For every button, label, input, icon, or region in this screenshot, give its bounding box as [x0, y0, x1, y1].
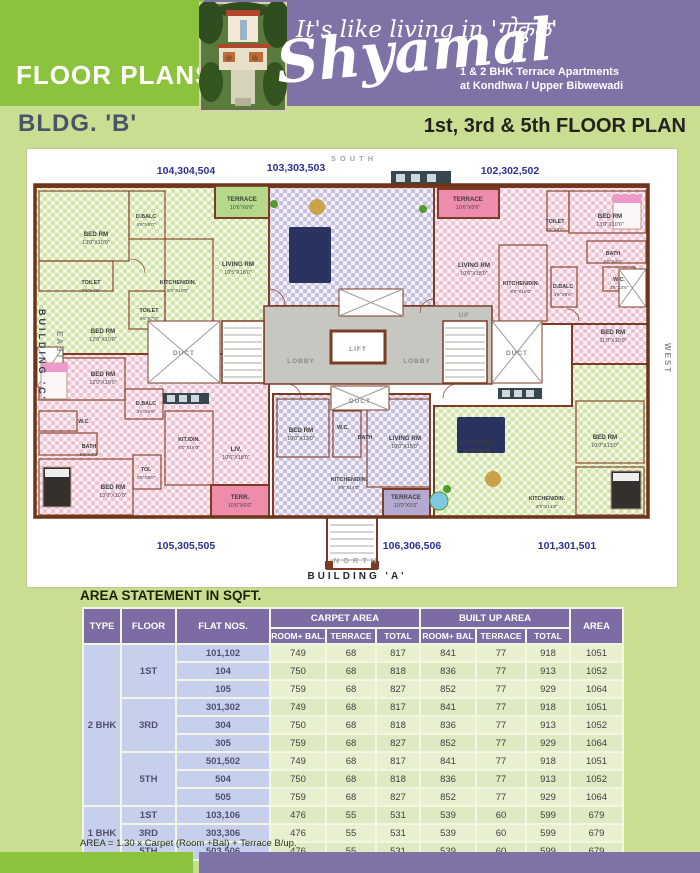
table-cell: 5TH: [121, 752, 176, 806]
room-dim-label: 13'0"X10'0": [596, 222, 624, 228]
table-cell: 750: [270, 716, 326, 734]
table-cell: 599: [526, 806, 570, 824]
col-area: AREA: [570, 608, 623, 644]
room-dim-label: 10'6"X6'6": [456, 205, 481, 211]
table-row: 1 BHK1ST103,1064765553153960599679: [83, 806, 623, 824]
table-cell: 749: [270, 644, 326, 662]
table-cell: 827: [376, 680, 420, 698]
room-name-label: BED RM: [91, 371, 115, 378]
room-name-label: BED RM: [289, 427, 313, 434]
plant-icon: [443, 485, 451, 493]
table-cell: 913: [526, 662, 570, 680]
room-dim-label: 10'6"X6'6": [230, 205, 255, 211]
table-cell: 1ST: [121, 806, 176, 824]
table-unit-103: [309, 199, 325, 215]
table-cell: 55: [326, 824, 376, 842]
col-builtup-terrace: TERRACE: [476, 628, 526, 644]
table-cell: 759: [270, 680, 326, 698]
core-label: DUCT: [349, 398, 371, 405]
building-b-title: BLDG. 'B': [18, 110, 137, 138]
core-label: LOBBY: [287, 358, 315, 365]
room-name-label: BED RM: [598, 213, 622, 220]
table-cell: 929: [526, 734, 570, 752]
table-cell: 68: [326, 662, 376, 680]
table-cell: 1064: [570, 680, 623, 698]
room-name-label: BED RM: [593, 434, 617, 441]
table-cell: 77: [476, 698, 526, 716]
core-label: DUCT: [173, 350, 195, 357]
table-cell: 77: [476, 770, 526, 788]
table-cell: 55: [326, 806, 376, 824]
brochure-page: { "header": { "floor_plans": "FLOOR PLAN…: [0, 0, 700, 873]
table-cell: 77: [476, 752, 526, 770]
building-c-label: BUILDING 'C': [37, 309, 47, 402]
floor-plan-title: 1st, 3rd & 5th FLOOR PLAN: [424, 115, 686, 138]
compass-east: EAST: [55, 331, 64, 360]
table-cell: 750: [270, 662, 326, 680]
table-cell: 77: [476, 734, 526, 752]
table-cell: 68: [326, 770, 376, 788]
table-cell: 105: [176, 680, 270, 698]
rug-unit-101: [457, 417, 505, 453]
room-name-label: BATH: [358, 435, 373, 441]
table-cell: 77: [476, 716, 526, 734]
table-cell: 827: [376, 788, 420, 806]
compass-west: WEST: [663, 343, 672, 374]
room-dim-label: 4'6"X6'6": [553, 292, 572, 298]
core-label: UP: [458, 312, 469, 319]
room-dim-label: 8'0"X18'0": [178, 445, 200, 451]
footer-green-bar: [0, 852, 193, 873]
room-name-label: KITCHEN/DIN.: [160, 280, 197, 286]
table-cell: 68: [326, 644, 376, 662]
room-dim-label: 10'5"X18'0": [224, 270, 252, 276]
table-cell: 1064: [570, 788, 623, 806]
col-carpet-total: TOTAL: [376, 628, 420, 644]
room-dim-label: 6'6"X4'0": [603, 259, 622, 265]
table-cell: 531: [376, 806, 420, 824]
table-cell: 836: [420, 770, 476, 788]
table-cell: 1064: [570, 734, 623, 752]
room-name-label: KIT./DIN.: [178, 437, 200, 443]
table-cell: 101,102: [176, 644, 270, 662]
table-cell: 305: [176, 734, 270, 752]
fountain: [430, 492, 448, 510]
room-dim-label: 10'6"X18'0": [460, 271, 488, 277]
table-cell: 749: [270, 752, 326, 770]
col-builtup-roombal: ROOM+ BAL: [420, 628, 476, 644]
table-cell: 913: [526, 716, 570, 734]
col-floor: FLOOR: [121, 608, 176, 644]
room-name-label: TOILET: [545, 219, 565, 225]
area-table: TYPE FLOOR FLAT NOS. CARPET AREA BUILT U…: [82, 607, 624, 861]
table-cell: 1051: [570, 644, 623, 662]
room-dim-label: 4'6"X8'0": [545, 227, 564, 233]
area-table-header: TYPE FLOOR FLAT NOS. CARPET AREA BUILT U…: [83, 608, 623, 644]
compass-north: NORTH: [334, 556, 381, 565]
room-name-label: LIVING RM: [458, 262, 490, 269]
room-name-label: D.BALC: [553, 284, 573, 290]
room-dim-label: 8'6"X14'0": [536, 504, 558, 510]
table-cell: 304: [176, 716, 270, 734]
room-name-label: TERRACE: [227, 196, 257, 203]
col-type: TYPE: [83, 608, 121, 644]
room-name-label: W.C.: [78, 419, 90, 425]
table-cell: 679: [570, 806, 623, 824]
room-name-label: BATH: [606, 251, 621, 257]
room-name-label: KITCHEN/DIN.: [529, 496, 566, 502]
table-unit-101: [485, 471, 501, 487]
floor-plan-drawing: SOUTH NORTH BUILDING 'A' BUILDING 'C' EA…: [27, 149, 677, 587]
table-cell: 1051: [570, 752, 623, 770]
table-row: 3RD301,30274968817841779181051: [83, 698, 623, 716]
room-name-label: D.BALC: [136, 214, 156, 220]
table-cell: 817: [376, 698, 420, 716]
col-builtup-total: TOTAL: [526, 628, 570, 644]
col-flat-nos: FLAT NOS.: [176, 608, 270, 644]
room-dim-label: 8'0"X18'0": [167, 288, 189, 294]
room-name-label: TERRACE: [391, 494, 421, 501]
table-cell: 68: [326, 680, 376, 698]
room-name-label: TERRACE: [453, 196, 483, 203]
table-cell: 817: [376, 752, 420, 770]
plant-icon: [270, 200, 278, 208]
table-cell: 818: [376, 770, 420, 788]
table-cell: 841: [420, 644, 476, 662]
table-cell: 836: [420, 716, 476, 734]
table-cell: 827: [376, 734, 420, 752]
table-cell: 817: [376, 644, 420, 662]
room-name-label: KITCHEN/DIN.: [331, 477, 368, 483]
table-cell: 852: [420, 734, 476, 752]
room-name-label: TOI.: [141, 467, 152, 473]
floor-plans-banner: FLOOR PLANS: [16, 60, 213, 91]
room-name-label: W.C.: [337, 425, 349, 431]
room-dim-label: 10'6"X6'6": [228, 503, 253, 509]
room-dim-label: 4'6"X8'0": [136, 222, 155, 228]
table-cell: 103,106: [176, 806, 270, 824]
room-name-label: BED RM: [84, 231, 108, 238]
room-dim-label: 10'0"X13'0": [591, 443, 619, 449]
room-name-label: LIVING RM: [389, 435, 421, 442]
compass-south: SOUTH: [331, 154, 377, 163]
table-cell: 77: [476, 644, 526, 662]
room-dim-label: 11'0"X10'0": [599, 338, 626, 344]
col-carpet-roombal: ROOM+ BAL.: [270, 628, 326, 644]
room-name-label: BED RM: [101, 484, 125, 491]
table-cell: 68: [326, 734, 376, 752]
table-cell: 679: [570, 824, 623, 842]
table-cell: 918: [526, 644, 570, 662]
table-cell: 918: [526, 698, 570, 716]
room-dim-label: 12'0"X10'0": [89, 337, 117, 343]
table-cell: 68: [326, 788, 376, 806]
building-a-label: BUILDING 'A': [307, 571, 406, 582]
table-cell: 836: [420, 662, 476, 680]
table-cell: 68: [326, 698, 376, 716]
table-cell: 104: [176, 662, 270, 680]
stair-left: [222, 321, 264, 383]
table-cell: 539: [420, 824, 476, 842]
room-dim-label: 10'0"X13'0": [287, 436, 315, 442]
room-dim-label: 8'6"X14'0": [338, 485, 360, 491]
table-cell: 77: [476, 680, 526, 698]
flat-number-label: 102,302,502: [481, 165, 540, 177]
room-dim-label: 13'0"X10'0": [99, 493, 127, 499]
room-dim-label: 10'0"X15'0": [463, 449, 491, 455]
table-cell: 818: [376, 662, 420, 680]
room-name-label: TERR.: [231, 494, 250, 501]
table-cell: 841: [420, 698, 476, 716]
table-cell: 68: [326, 716, 376, 734]
room-name-label: BED RM: [91, 328, 115, 335]
room-name-label: D.BALC: [136, 401, 156, 407]
table-cell: 852: [420, 680, 476, 698]
table-cell: 929: [526, 680, 570, 698]
col-carpet-terrace: TERRACE: [326, 628, 376, 644]
room-dim-label: 7'6"X4'6": [81, 288, 100, 294]
area-table-body: 2 BHK1ST101,1027496881784177918105110475…: [83, 644, 623, 860]
room-dim-label: 4'6"X6'6": [136, 409, 155, 415]
room-name-label: LIV.: [231, 446, 242, 453]
table-cell: 929: [526, 788, 570, 806]
table-cell: 818: [376, 716, 420, 734]
table-cell: 68: [326, 752, 376, 770]
table-cell: 1052: [570, 716, 623, 734]
room-name-label: TOILET: [139, 308, 159, 314]
flat-number-label: 103,303,503: [267, 162, 326, 174]
room-name-label: LIVING RM: [461, 440, 493, 447]
table-cell: 918: [526, 752, 570, 770]
room-name-label: W.C.: [613, 277, 625, 283]
duct-top: [339, 289, 403, 316]
stair-right: [443, 321, 487, 383]
room-dim-label: 13'0"X10'0": [82, 240, 110, 246]
room-dim-label: 3'6"X4'6": [609, 285, 628, 291]
core-label: LIFT: [349, 346, 367, 353]
room-name-label: LIVING RM: [222, 261, 254, 268]
table-cell: 1052: [570, 662, 623, 680]
rug-unit-103: [289, 227, 331, 283]
table-cell: 539: [420, 806, 476, 824]
table-cell: 505: [176, 788, 270, 806]
room-name-label: KITCHEN/DIN.: [503, 281, 540, 287]
table-cell: 759: [270, 788, 326, 806]
table-cell: 501,502: [176, 752, 270, 770]
table-cell: 1051: [570, 698, 623, 716]
room-name-label: TOILET: [81, 280, 101, 286]
table-cell: 476: [270, 806, 326, 824]
table-cell: 504: [176, 770, 270, 788]
table-cell: 531: [376, 824, 420, 842]
area-formula-note: AREA = 1.30 x Carpet (Room +Bal) + Terra…: [80, 838, 297, 849]
room-dim-label: 10'0"X15'0": [391, 444, 419, 450]
table-row: 2 BHK1ST101,10274968817841779181051: [83, 644, 623, 662]
table-cell: 750: [270, 770, 326, 788]
room-name-label: BATH: [82, 444, 97, 450]
room-dim-label: 8'6"X4'0": [79, 452, 98, 458]
subtitle-line2: at Kondhwa / Upper Bibwewadi: [460, 80, 623, 92]
table-cell: 599: [526, 824, 570, 842]
flat-number-label: 106,306,506: [383, 540, 442, 552]
table-row: 5TH501,50274968817841779181051: [83, 752, 623, 770]
table-cell: 841: [420, 752, 476, 770]
col-carpet-area: CARPET AREA: [270, 608, 420, 628]
table-cell: 1052: [570, 770, 623, 788]
flat-number-label: 101,301,501: [538, 540, 597, 552]
table-cell: 77: [476, 788, 526, 806]
plant-icon: [419, 205, 427, 213]
table-cell: 60: [476, 824, 526, 842]
room-dim-label: 10'6"X18'0": [222, 455, 250, 461]
col-builtup-area: BUILT UP AREA: [420, 608, 570, 628]
table-cell: 759: [270, 734, 326, 752]
room-dim-label: 4'6"X7'0": [139, 316, 158, 322]
table-cell: 77: [476, 662, 526, 680]
temple-painting: [199, 2, 287, 112]
table-cell: 1ST: [121, 644, 176, 698]
table-cell: 60: [476, 806, 526, 824]
area-statement-title: AREA STATEMENT IN SQFT.: [80, 588, 261, 603]
room-dim-label: 12'0"X10'0": [89, 380, 117, 386]
floor-plan-panel: SOUTH NORTH BUILDING 'A' BUILDING 'C' EA…: [26, 148, 678, 588]
flat-number-label: 105,305,505: [157, 540, 216, 552]
table-cell: 913: [526, 770, 570, 788]
core-label: LOBBY: [403, 358, 431, 365]
room-name-label: BED RM: [601, 329, 625, 336]
table-cell: 301,302: [176, 698, 270, 716]
table-cell: 749: [270, 698, 326, 716]
room-dim-label: 8'0"X18'0": [510, 289, 532, 295]
flat-number-label: 104,304,504: [157, 165, 216, 177]
table-cell: 3RD: [121, 698, 176, 752]
room-dim-label: 10'0"X5'6": [394, 503, 419, 509]
footer-purple-bar: [199, 852, 700, 873]
table-cell: 852: [420, 788, 476, 806]
room-dim-label: 4'6"X8'0": [136, 475, 155, 481]
core-label: DUCT: [506, 350, 528, 357]
table-cell: 2 BHK: [83, 644, 121, 806]
